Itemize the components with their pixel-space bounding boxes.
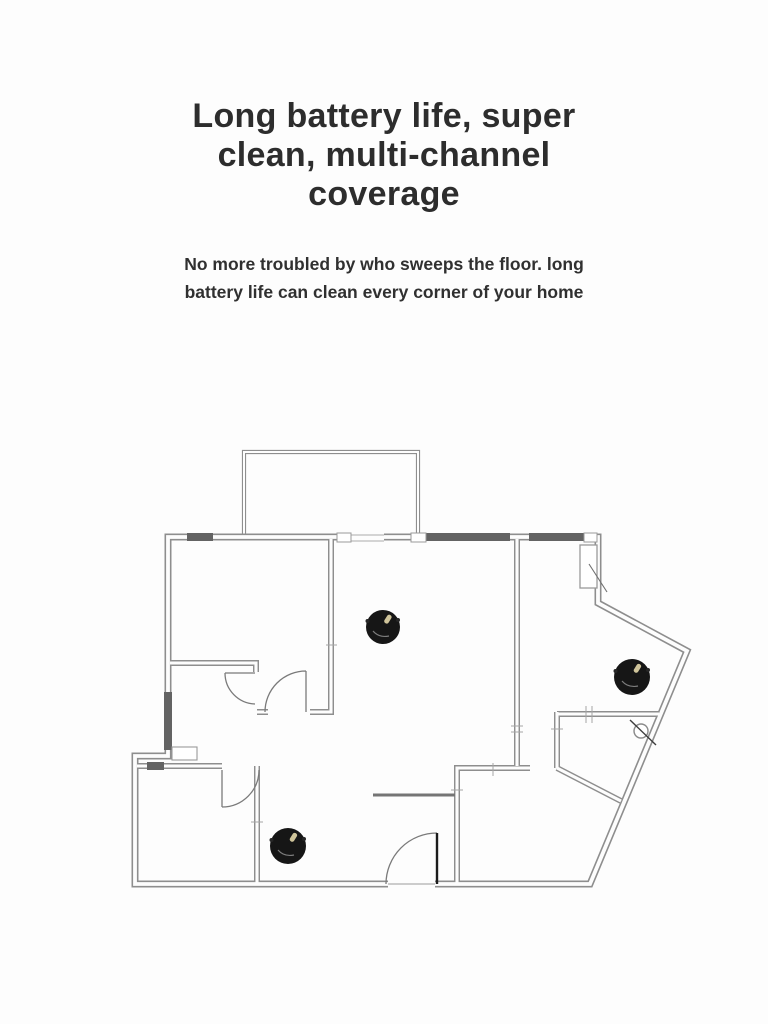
closet-niche: [580, 545, 607, 592]
balcony-walls: [244, 452, 418, 537]
floor-plan: [0, 0, 768, 1024]
floor-plan-svg: [0, 0, 768, 1024]
robot-vacuum-icon: [270, 828, 307, 864]
outer-walls: [135, 537, 687, 884]
wall-inner-white: [135, 537, 687, 884]
marketing-page: Long battery life, super clean, multi-ch…: [0, 0, 768, 1024]
robot-vacuum-icon: [614, 659, 651, 695]
utility-box: [172, 747, 197, 760]
robot-vacuum-icon: [366, 610, 401, 644]
